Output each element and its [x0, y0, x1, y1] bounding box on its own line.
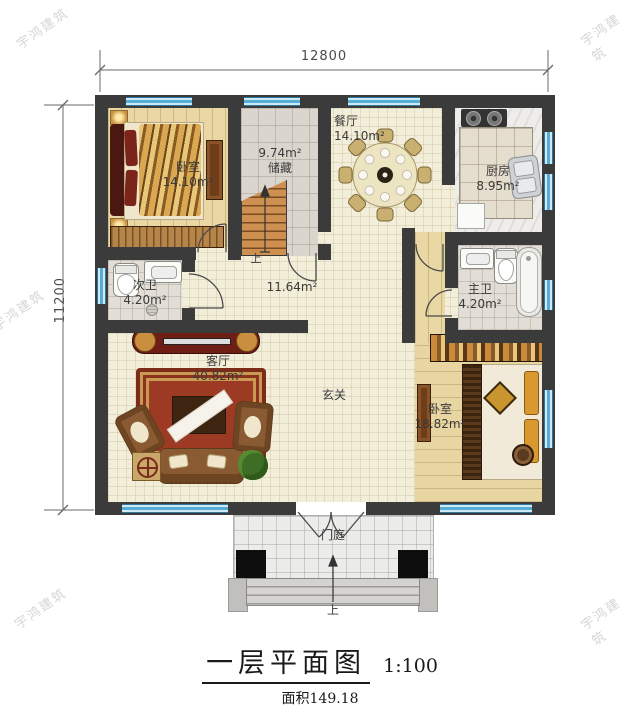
armchair-cushion: [127, 419, 152, 446]
tv-screen: [163, 338, 231, 345]
room-label-bedroom-top-left: 卧室 14.10m²: [150, 160, 226, 190]
wall-bath-secondary-right-a: [182, 260, 195, 272]
kitchen-cabinet: [457, 203, 485, 229]
window-storage-top: [244, 97, 300, 106]
bed-pillow: [124, 170, 138, 207]
dimension-left-value: 11200: [53, 272, 69, 328]
step-side-block: [228, 578, 248, 612]
bed-pillow: [124, 130, 138, 167]
window-bath-secondary: [97, 268, 106, 304]
bedside-stool: [512, 444, 534, 466]
room-label-bath-master: 主卫 4.20m²: [444, 282, 516, 312]
toilet-bowl: [498, 259, 514, 281]
window-bedroom-top: [126, 97, 192, 106]
plan-scale: 1:100: [383, 655, 438, 677]
wardrobe: [110, 226, 224, 248]
corridor-floor: [415, 232, 445, 343]
side-table: [132, 452, 161, 481]
armchair-cushion: [243, 415, 262, 438]
watermark: 宇鸿建筑: [576, 1, 640, 65]
stove: [461, 109, 507, 127]
wall-corner-block: [402, 330, 415, 343]
armchair: [232, 400, 274, 453]
sofa-pillow: [206, 454, 226, 469]
room-label-bath-secondary: 次卫 4.20m²: [106, 278, 184, 308]
room-label-storage: 9.74m² 储藏: [240, 146, 320, 176]
burner: [466, 111, 481, 126]
room-label-dining: 餐厅 14.10m²: [334, 114, 404, 144]
window-living-bottom: [122, 504, 228, 513]
wall-kitchen-left: [442, 108, 455, 185]
potted-plant: [238, 450, 268, 480]
stairs-up-label: 上: [246, 252, 266, 266]
toilet: [494, 248, 518, 284]
bathtub: [516, 247, 542, 317]
watermark: 宇鸿建筑: [576, 585, 640, 649]
room-label-foyer: 玄关: [304, 388, 364, 403]
room-label-kitchen: 厨房 8.95m²: [460, 164, 536, 194]
plan-title: 一层平面图: [202, 648, 370, 684]
wall-living-top: [108, 320, 308, 333]
sofa: [158, 448, 244, 484]
coffee-table: [172, 396, 226, 434]
cabinet-end: [236, 330, 258, 352]
watermark: 宇鸿建筑: [12, 3, 72, 53]
room-label-living: 客厅 40.82m²: [178, 354, 258, 384]
window-kitchen-a: [544, 132, 553, 164]
wall-kitchen-bottom: [445, 232, 542, 245]
room-label-hall: 11.64m²: [252, 280, 332, 295]
wall-hall-corridor: [402, 228, 415, 343]
window-bedroom-right-bottom: [440, 504, 532, 513]
compass-decor: [137, 457, 158, 478]
watermark: 宇鸿建筑: [10, 583, 70, 633]
wall-jamb: [318, 244, 331, 260]
entry-steps: [246, 578, 420, 606]
bed-headboard: [110, 124, 124, 216]
toilet-tank: [115, 265, 137, 274]
plan-area: 面积149.18: [150, 688, 490, 708]
sink-basin: [466, 253, 490, 265]
window-dining-top: [348, 97, 420, 106]
wall-bedroom-bath: [108, 247, 196, 260]
window-bath-master: [544, 280, 553, 310]
room-label-bedroom-right: 卧室 18.82m²: [404, 402, 476, 432]
cabinet-end: [134, 330, 156, 352]
title-block: 一层平面图 1:100 面积149.18: [150, 641, 490, 708]
window-kitchen-b: [544, 174, 553, 210]
step-side-block: [418, 578, 438, 612]
bathroom-sink: [460, 248, 494, 269]
wall-bedroom-storage: [228, 108, 241, 260]
sofa-pillow: [168, 454, 189, 470]
bed-pillow: [524, 371, 539, 415]
wall-bath-secondary-right-b: [182, 308, 195, 320]
burner: [487, 111, 502, 126]
dimension-top-value: 12800: [284, 49, 364, 65]
porch-column: [398, 550, 428, 580]
porch-column: [236, 550, 266, 580]
room-label-porch: 门庭: [300, 528, 366, 543]
window-bedroom-right: [544, 390, 553, 448]
wall-bath-master-left-b: [445, 318, 458, 330]
wall-bedroom-right-top: [445, 330, 542, 343]
floor-plan-sheet: 卧室 14.10m² 9.74m² 储藏 餐厅 14.10m² 厨房 8.95m…: [0, 0, 640, 715]
toilet-tank: [496, 250, 516, 259]
bathtub-drain: [526, 256, 531, 261]
entrance-up-label: 上: [323, 603, 343, 618]
watermark: 宇鸿建筑: [0, 285, 48, 335]
